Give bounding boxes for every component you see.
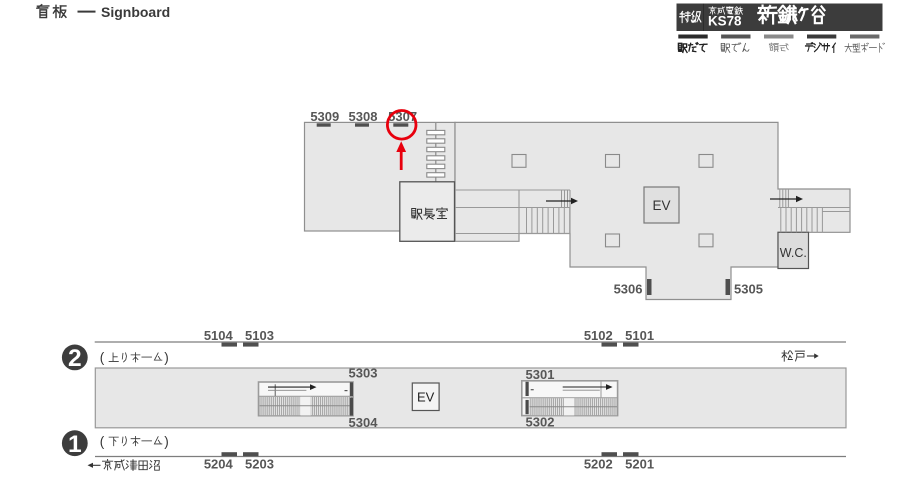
svg-text:5203: 5203 <box>245 456 274 471</box>
svg-text:): ) <box>164 350 169 365</box>
svg-text:): ) <box>164 434 169 449</box>
svg-text:5304: 5304 <box>349 415 379 430</box>
svg-text:(: ( <box>100 434 105 449</box>
svg-text:5305: 5305 <box>734 281 763 296</box>
svg-text:1: 1 <box>68 431 82 458</box>
svg-text:(: ( <box>100 350 105 365</box>
svg-text:5306: 5306 <box>614 281 643 296</box>
svg-text:Signboard: Signboard <box>101 4 170 20</box>
svg-text:5303: 5303 <box>349 366 378 381</box>
svg-text:EV: EV <box>417 390 435 405</box>
svg-text:5201: 5201 <box>625 456 654 471</box>
svg-text:5308: 5308 <box>349 109 378 124</box>
svg-text:5204: 5204 <box>204 456 234 471</box>
svg-text:2: 2 <box>68 345 82 372</box>
svg-text:5301: 5301 <box>526 367 555 382</box>
svg-text:KS78: KS78 <box>708 14 742 29</box>
svg-text:5104: 5104 <box>204 328 234 343</box>
svg-text:EV: EV <box>652 198 670 213</box>
svg-text:5103: 5103 <box>245 328 274 343</box>
svg-text:5302: 5302 <box>526 414 555 429</box>
svg-text:5102: 5102 <box>584 328 613 343</box>
svg-text:W.C.: W.C. <box>780 246 807 260</box>
svg-text:5202: 5202 <box>584 456 613 471</box>
svg-text:5101: 5101 <box>625 328 654 343</box>
svg-text:5309: 5309 <box>310 109 339 124</box>
